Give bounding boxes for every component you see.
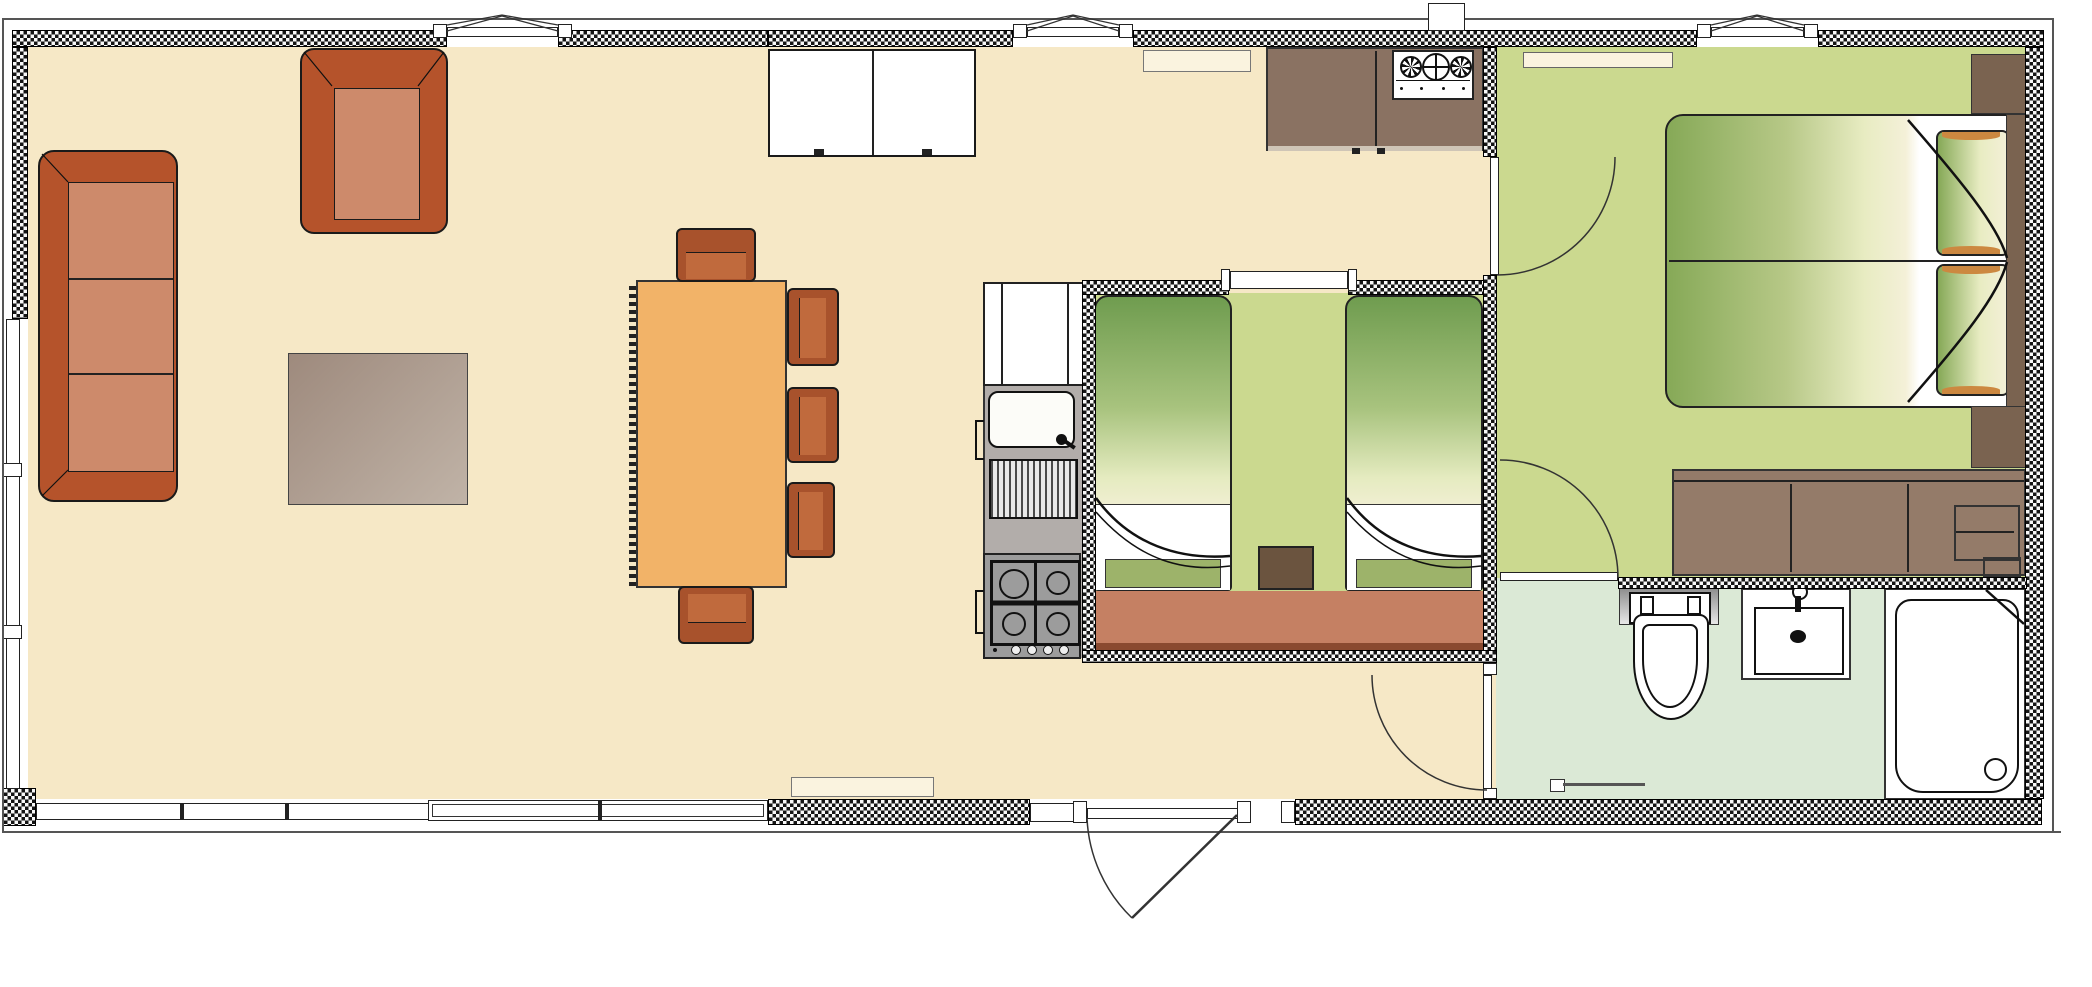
sideboard	[768, 49, 976, 157]
top-window-1	[447, 27, 558, 37]
cabinet-handle-bracket	[975, 590, 984, 634]
wall-top-c	[768, 30, 1013, 47]
window-jamb	[1119, 24, 1133, 38]
wash-basin	[1741, 588, 1851, 680]
armchair-cushion	[334, 88, 420, 220]
window-jamb	[558, 24, 572, 38]
sofa-seat-cushions	[68, 182, 174, 472]
dining-partition-stub	[629, 282, 636, 586]
window-jamb	[433, 24, 447, 38]
window-jamb	[1013, 24, 1027, 38]
window-jamb	[1697, 24, 1711, 38]
worktop-edge-strip	[1268, 146, 1482, 151]
wall-bottom-right	[1295, 799, 2042, 825]
bed-pillow	[1105, 559, 1221, 588]
twin-bed-left	[1094, 295, 1232, 591]
worktop-handle	[1377, 148, 1385, 154]
worktop-handle	[1352, 148, 1360, 154]
sofa-cushion-divider	[69, 278, 173, 280]
toilet	[1619, 588, 1717, 718]
basin-tap-stem	[1795, 596, 1801, 612]
burner-icon	[999, 569, 1029, 599]
boiler-dial-icon	[1422, 53, 1450, 81]
roof-vent	[1428, 3, 1465, 31]
wall-bathroom-top	[1618, 577, 2027, 589]
wall-right	[2025, 47, 2044, 799]
window-jamb	[1348, 269, 1357, 291]
bed-center-split	[1669, 260, 2007, 262]
shower-tray	[1884, 588, 2026, 800]
wall-twin-left	[1082, 280, 1096, 663]
twin-wardrobe-run	[1093, 591, 1484, 650]
bed-bolster-pillow	[1936, 264, 2010, 396]
window-mullion	[2, 625, 22, 639]
basin-drain	[1790, 630, 1806, 643]
wall-twin-top-a	[1082, 280, 1229, 295]
outer-trim-bottom	[3, 831, 2061, 833]
entrance-door-arc	[1087, 818, 1132, 918]
kitchen-drainer	[989, 459, 1078, 519]
wall-twin-top-b	[1348, 280, 1496, 295]
wall-center-upper	[1483, 47, 1497, 157]
dresser-pullout	[1983, 557, 2021, 577]
outer-trim-top	[3, 18, 2053, 20]
dining-chair-bottom	[678, 586, 754, 644]
wall-twin-bottom	[1082, 650, 1497, 663]
dresser-drawer-stack	[1954, 505, 2020, 561]
door-jamb	[1483, 663, 1497, 675]
double-bed	[1665, 114, 2010, 408]
bathroom-master-door-leaf	[1500, 572, 1618, 581]
kitchen-tall-cabinet	[983, 282, 1084, 386]
boiler-fan-icon	[1400, 56, 1422, 78]
wall-top-e	[1818, 30, 2044, 47]
window-mullion	[285, 803, 289, 820]
dining-chair-right-2	[787, 387, 839, 463]
burner-icon	[1046, 612, 1070, 636]
dining-chair-right-3	[787, 482, 835, 558]
master-nightstand-top	[1971, 54, 2027, 114]
wall-top-a	[12, 30, 447, 47]
armchair	[300, 48, 448, 234]
window-jamb	[1804, 24, 1818, 38]
sofa-cushion-divider	[69, 373, 173, 375]
twin-bed-right	[1345, 295, 1483, 591]
dining-chair-right-1	[787, 288, 839, 366]
gas-hob	[983, 553, 1081, 659]
entrance-threshold	[1087, 808, 1238, 819]
master-nightstand-bottom	[1971, 406, 2027, 468]
master-headboard	[2006, 114, 2027, 408]
boiler-unit	[1392, 50, 1474, 100]
bathroom-hall-door-leaf	[1483, 675, 1492, 790]
boiler-fan-icon	[1450, 56, 1472, 78]
bed-pillow	[1356, 559, 1472, 588]
bed-bolster-pillow	[1936, 130, 2010, 256]
shower-drain	[1984, 758, 2007, 781]
sideboard-handle	[814, 149, 824, 155]
towel-rail	[1550, 779, 1646, 791]
dining-chair-top	[676, 228, 756, 282]
window-mullion	[2, 463, 22, 477]
hob-knob	[1027, 645, 1037, 655]
toilet-button	[1640, 596, 1654, 615]
master-bedroom-door-leaf	[1490, 157, 1499, 275]
wall-top-b	[558, 30, 768, 47]
wall-left-upper	[12, 47, 28, 319]
door-jamb	[1483, 788, 1497, 799]
wall-top-d	[1133, 30, 1697, 47]
sofa-three-seat	[38, 150, 178, 502]
burner-icon	[1002, 612, 1026, 636]
wall-center-lower	[1483, 275, 1497, 663]
hob-knob	[1059, 645, 1069, 655]
bottom-window-run-a	[36, 803, 430, 820]
door-jamb	[1281, 801, 1295, 823]
wall-corner-bottom-left	[3, 788, 36, 826]
rug	[288, 353, 468, 505]
floorplan-canvas	[0, 0, 2092, 987]
burner-icon	[1046, 571, 1070, 595]
window-jamb	[1221, 269, 1230, 291]
window-mullion	[598, 800, 602, 821]
master-dresser	[1672, 469, 2026, 576]
toilet-button	[1687, 596, 1701, 615]
dining-wall-shelf	[1143, 50, 1251, 72]
wall-bottom-mid	[768, 799, 1030, 825]
sideboard-door-divider	[872, 51, 874, 155]
cabinet-handle-bracket	[975, 420, 984, 460]
left-wall-window	[6, 319, 20, 789]
hob-knob	[1011, 645, 1021, 655]
top-window-2	[1027, 27, 1119, 37]
hob-grate	[990, 560, 1081, 646]
window-mullion	[180, 803, 184, 820]
dining-table	[636, 280, 787, 588]
master-wall-shelf	[1523, 52, 1673, 68]
hob-knob	[1043, 645, 1053, 655]
top-window-3	[1711, 27, 1804, 37]
twin-bedside-table	[1258, 546, 1314, 590]
doormat	[791, 777, 934, 797]
sideboard-handle	[922, 149, 932, 155]
outer-trim-left	[2, 18, 4, 833]
toilet-bowl	[1633, 614, 1709, 720]
door-jamb	[1237, 801, 1251, 823]
twin-bedroom-window	[1230, 271, 1348, 289]
outer-trim-right	[2052, 18, 2054, 833]
door-jamb	[1073, 801, 1087, 823]
entrance-wall-cap	[1030, 803, 1075, 822]
